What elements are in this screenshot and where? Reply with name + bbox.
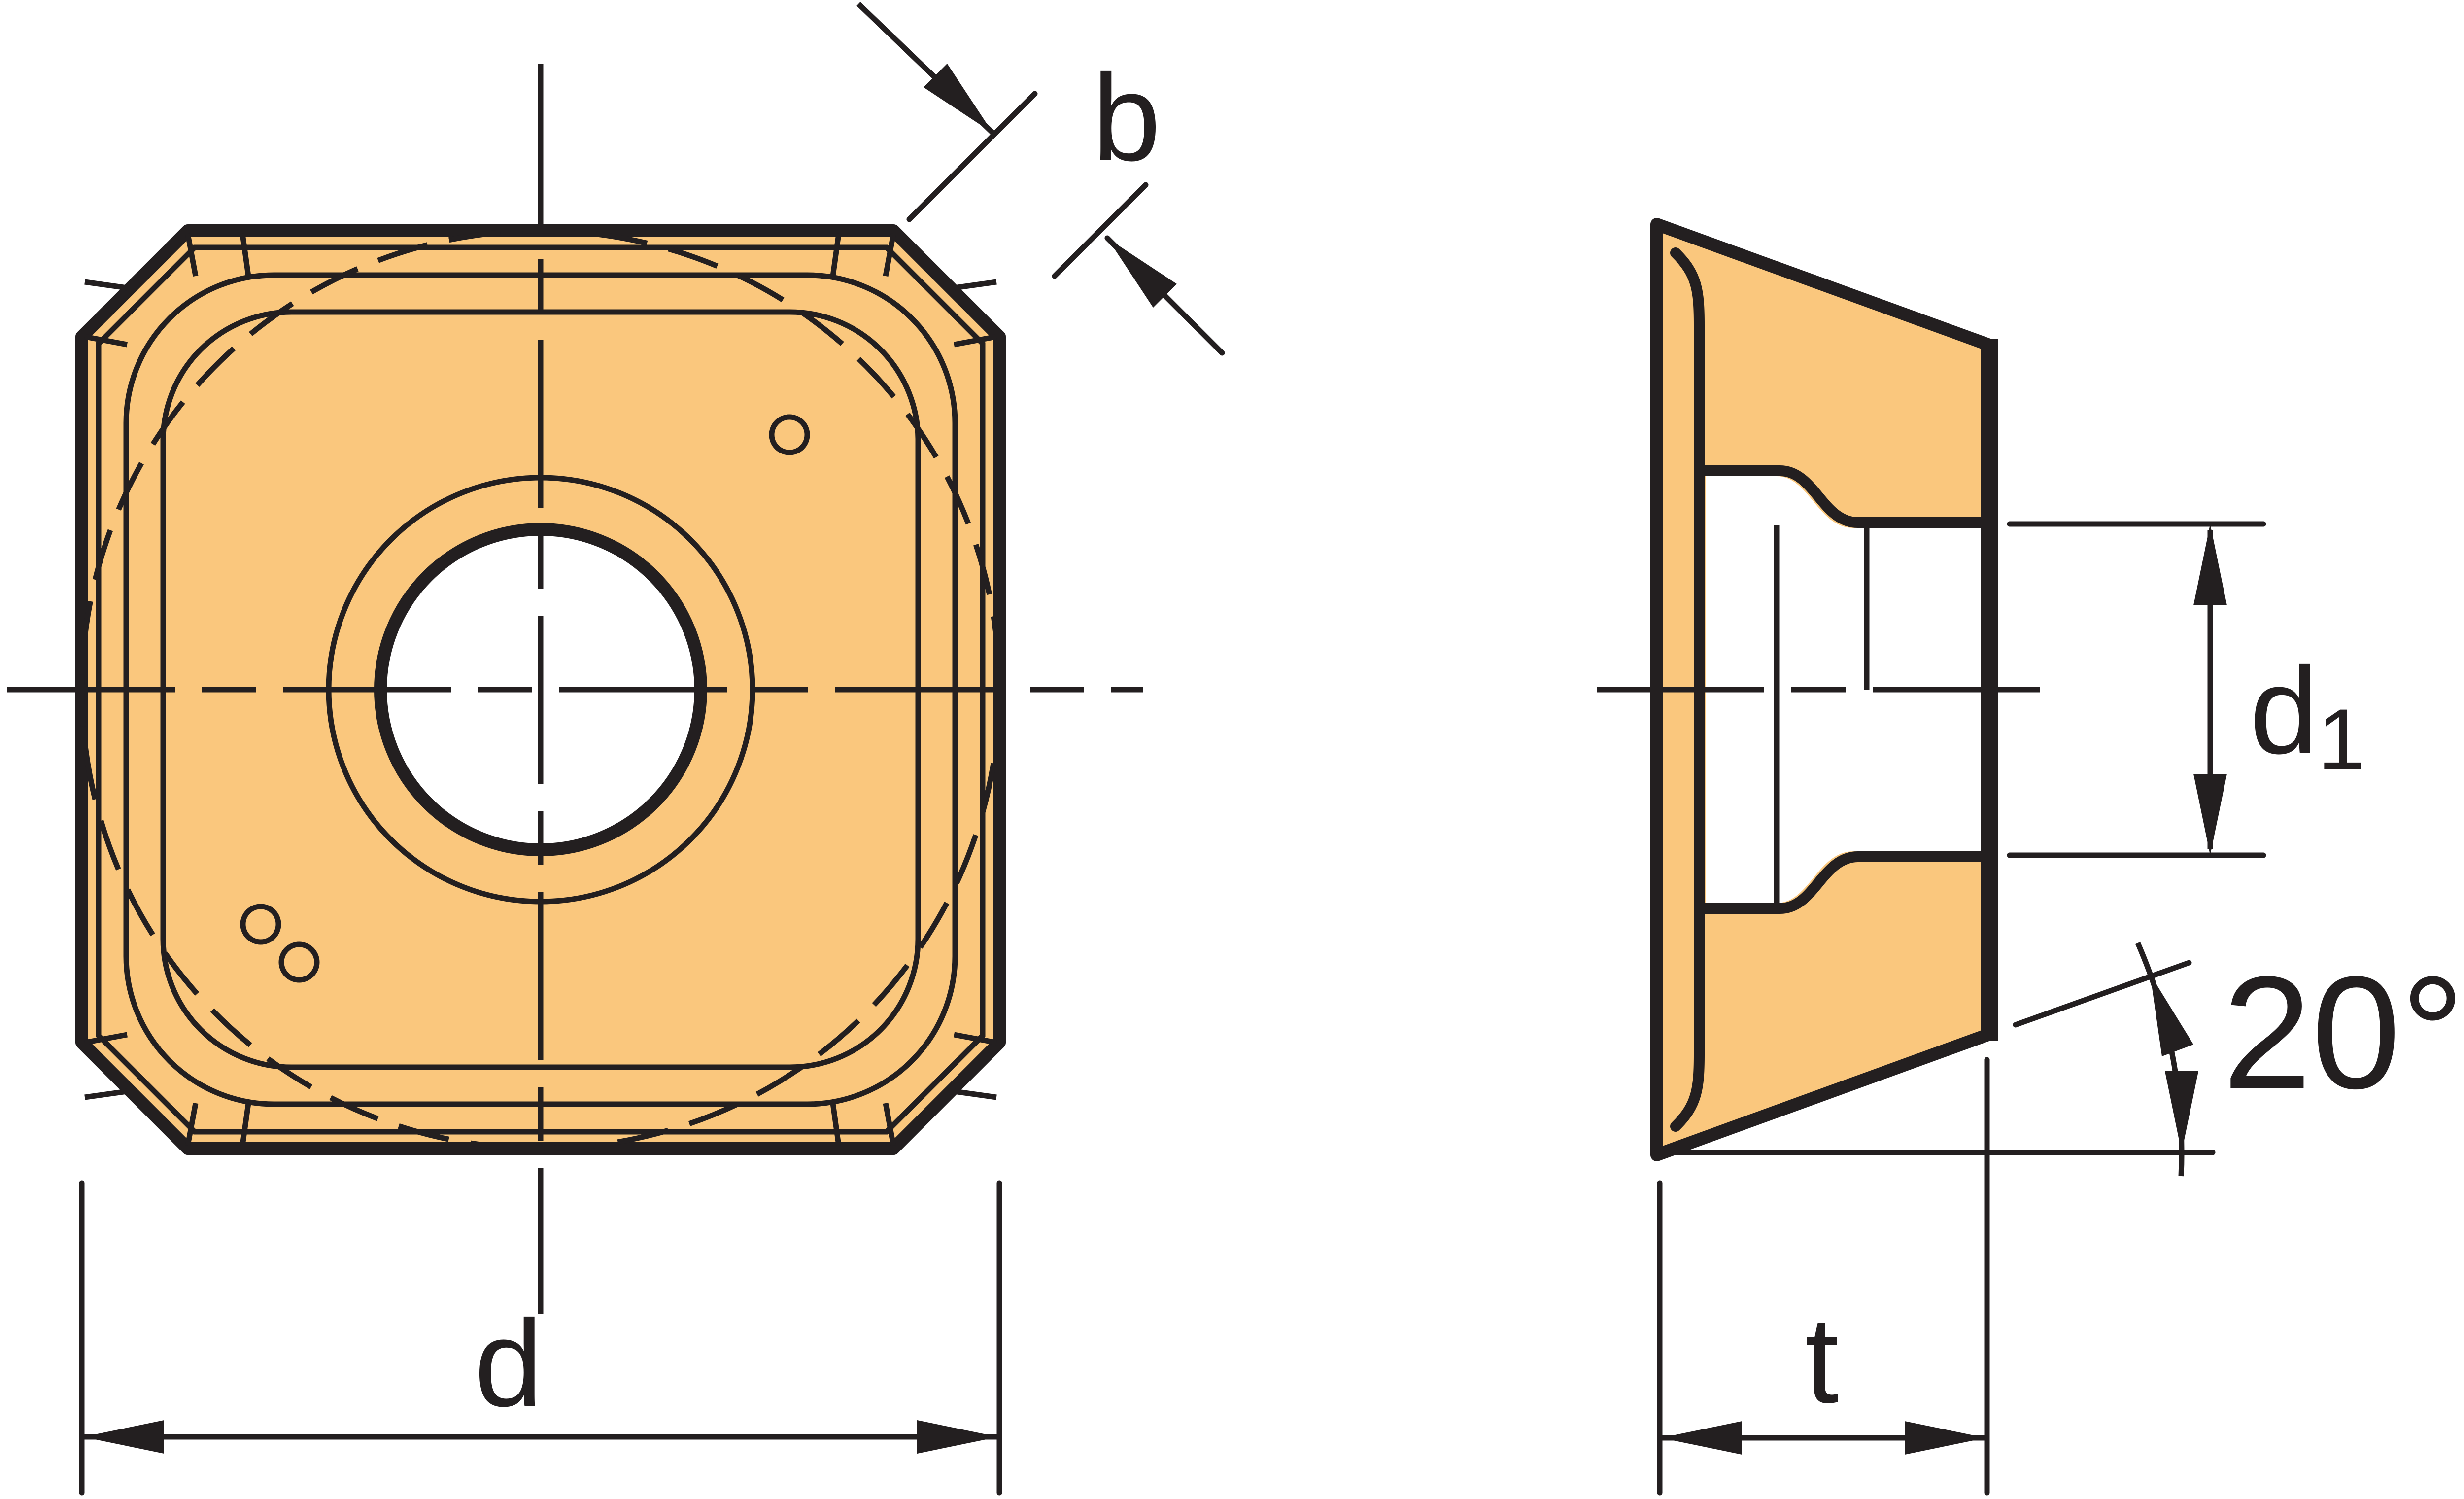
d-label: d — [474, 1294, 543, 1432]
angle-label: 20° — [2223, 943, 2464, 1122]
angle-arrow-upper — [2150, 974, 2193, 1056]
t-arrow-left — [1661, 1421, 1742, 1455]
drawing-canvas: d b d 1 — [0, 0, 2464, 1499]
d1-label-sub: 1 — [2318, 692, 2365, 788]
d1-arrow-bottom — [2193, 774, 2227, 855]
t-label: t — [1805, 1291, 1839, 1429]
b-label: b — [1092, 49, 1161, 186]
side-view — [1597, 224, 2062, 1155]
insert-dimension-drawing: d b d 1 — [0, 0, 2464, 1499]
d1-arrow-top — [2193, 524, 2227, 605]
d1-label-main: d — [2250, 642, 2318, 779]
d-arrow-left — [83, 1420, 164, 1454]
top-view — [7, 64, 1143, 1314]
t-arrow-right — [1905, 1421, 1986, 1455]
d-arrow-right — [917, 1420, 998, 1454]
dimension-d1: d 1 — [2010, 524, 2365, 855]
angle-arrow-lower — [2165, 1071, 2198, 1152]
